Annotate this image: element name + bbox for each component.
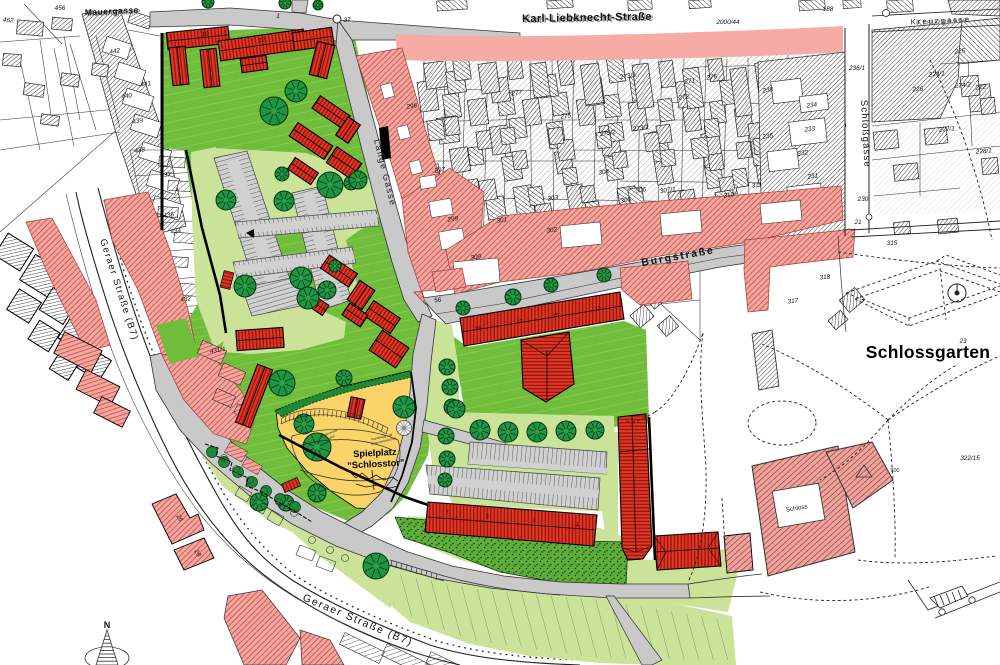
svg-text:7: 7 (445, 510, 448, 516)
svg-text:15: 15 (552, 313, 559, 320)
svg-text:5: 5 (485, 514, 488, 520)
svg-text:317: 317 (787, 298, 799, 306)
svg-text:1: 1 (575, 522, 578, 528)
svg-text:19: 19 (474, 326, 481, 333)
svg-text:236/1: 236/1 (848, 65, 865, 72)
svg-text:12: 12 (258, 36, 266, 44)
svg-text:226: 226 (911, 86, 924, 94)
svg-text:222: 222 (974, 84, 987, 92)
svg-text:230: 230 (857, 196, 869, 203)
svg-text:Schlossgarten: Schlossgarten (866, 342, 991, 362)
svg-text:Karl-Liebknecht-Straße: Karl-Liebknecht-Straße (522, 11, 652, 25)
svg-text:1: 1 (276, 13, 280, 20)
svg-text:3: 3 (532, 518, 535, 524)
svg-text:21: 21 (853, 219, 862, 226)
svg-text:188: 188 (823, 6, 834, 13)
svg-text:17: 17 (516, 319, 523, 326)
svg-text:225: 225 (953, 48, 966, 56)
svg-text:315: 315 (887, 240, 898, 247)
svg-text:37: 37 (343, 17, 351, 24)
svg-text:10: 10 (201, 31, 209, 39)
svg-text:13: 13 (594, 306, 601, 313)
svg-text:462: 462 (2, 16, 14, 24)
svg-text:311: 311 (751, 181, 763, 189)
svg-text:N: N (104, 620, 111, 630)
svg-text:322/15: 322/15 (960, 455, 980, 462)
svg-text:318: 318 (819, 274, 831, 282)
svg-text:900: 900 (890, 468, 899, 474)
svg-text:456: 456 (55, 5, 66, 12)
svg-text:2000/44: 2000/44 (715, 19, 740, 26)
svg-text:23: 23 (958, 338, 967, 345)
